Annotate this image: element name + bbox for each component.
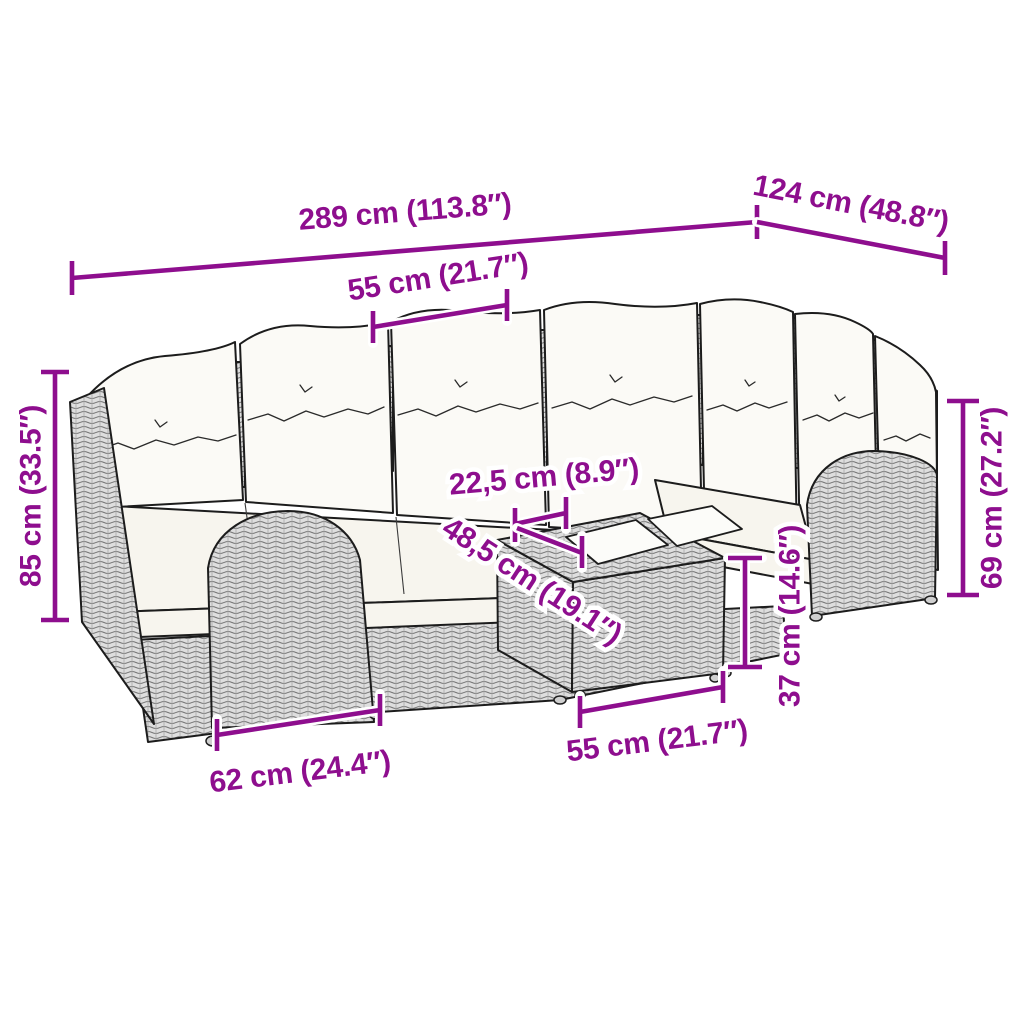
- dimension-arm-height: 69 cm (27.2″): [947, 401, 1009, 595]
- dimension-label-total-width: 289 cm (113.8″): [297, 187, 512, 237]
- dimension-label-module-width: 62 cm (24.4″): [208, 745, 393, 800]
- back-cushion-2: [240, 322, 393, 513]
- sofa-dimension-drawing: 289 cm (113.8″) 124 cm (48.8″) 55 cm (21…: [0, 0, 1024, 1024]
- dimension-total-height: 85 cm (33.5″): [15, 372, 70, 620]
- dimension-label-total-height: 85 cm (33.5″): [15, 405, 48, 587]
- dimension-total-depth: 124 cm (48.8″): [750, 169, 951, 275]
- dimension-label-arm-height: 69 cm (27.2″): [976, 407, 1009, 589]
- left-armrest: [208, 511, 374, 728]
- dimension-label-table-height: 37 cm (14.6″): [774, 525, 807, 707]
- right-armrest: [807, 451, 937, 616]
- dimension-line-arm-height: [947, 401, 979, 595]
- sofa-artwork: [70, 299, 938, 746]
- dimension-diagram: 289 cm (113.8″) 124 cm (48.8″) 55 cm (21…: [0, 0, 1024, 1024]
- dimension-label-table-width: 55 cm (21.7″): [565, 714, 750, 769]
